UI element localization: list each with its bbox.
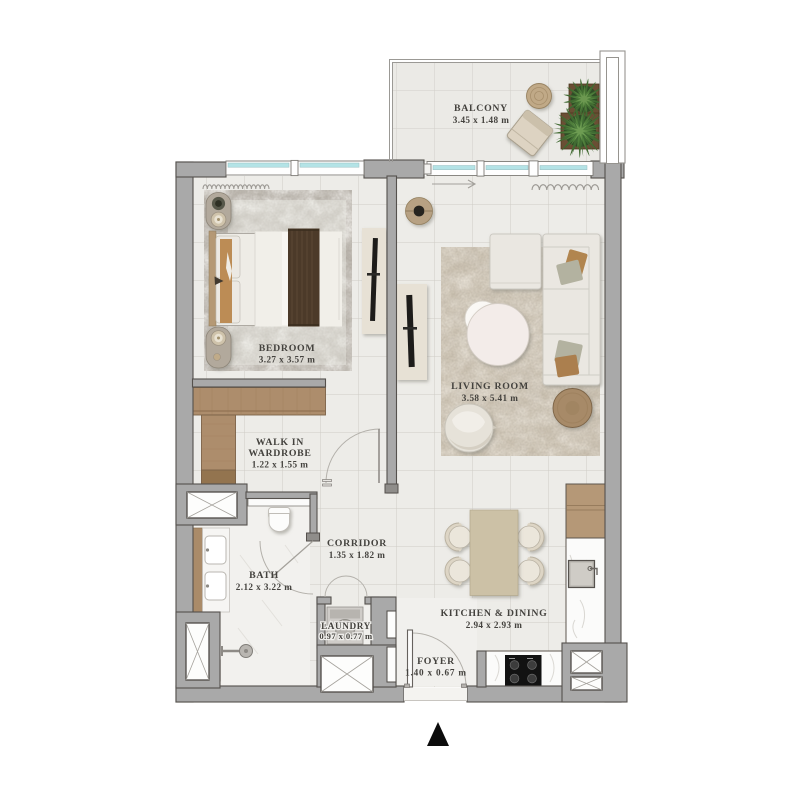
svg-text:FOYER: FOYER <box>417 656 455 667</box>
svg-text:LIVING ROOM: LIVING ROOM <box>451 381 529 392</box>
svg-text:0.97 x 0.77 m: 0.97 x 0.77 m <box>319 631 373 641</box>
svg-text:CORRIDOR: CORRIDOR <box>327 538 387 549</box>
svg-text:1.22 x 1.55 m: 1.22 x 1.55 m <box>252 460 309 470</box>
svg-text:1.35 x 1.82 m: 1.35 x 1.82 m <box>329 550 386 560</box>
svg-text:3.45 x 1.48 m: 3.45 x 1.48 m <box>453 115 510 125</box>
svg-text:WARDROBE: WARDROBE <box>248 448 311 459</box>
svg-text:LAUNDRY: LAUNDRY <box>321 621 371 631</box>
svg-text:KITCHEN & DINING: KITCHEN & DINING <box>440 608 547 619</box>
svg-text:3.58 x 5.41 m: 3.58 x 5.41 m <box>462 393 519 403</box>
svg-text:2.12 x 3.22 m: 2.12 x 3.22 m <box>236 582 293 592</box>
svg-text:1.40 x 0.67 m: 1.40 x 0.67 m <box>405 668 467 678</box>
svg-text:2.94 x 2.93 m: 2.94 x 2.93 m <box>466 620 523 630</box>
svg-text:BALCONY: BALCONY <box>454 103 508 114</box>
svg-text:BEDROOM: BEDROOM <box>259 343 316 354</box>
svg-text:3.27 x 3.57 m: 3.27 x 3.57 m <box>259 355 316 365</box>
svg-text:WALK IN: WALK IN <box>256 437 304 448</box>
svg-text:BATH: BATH <box>249 570 279 581</box>
